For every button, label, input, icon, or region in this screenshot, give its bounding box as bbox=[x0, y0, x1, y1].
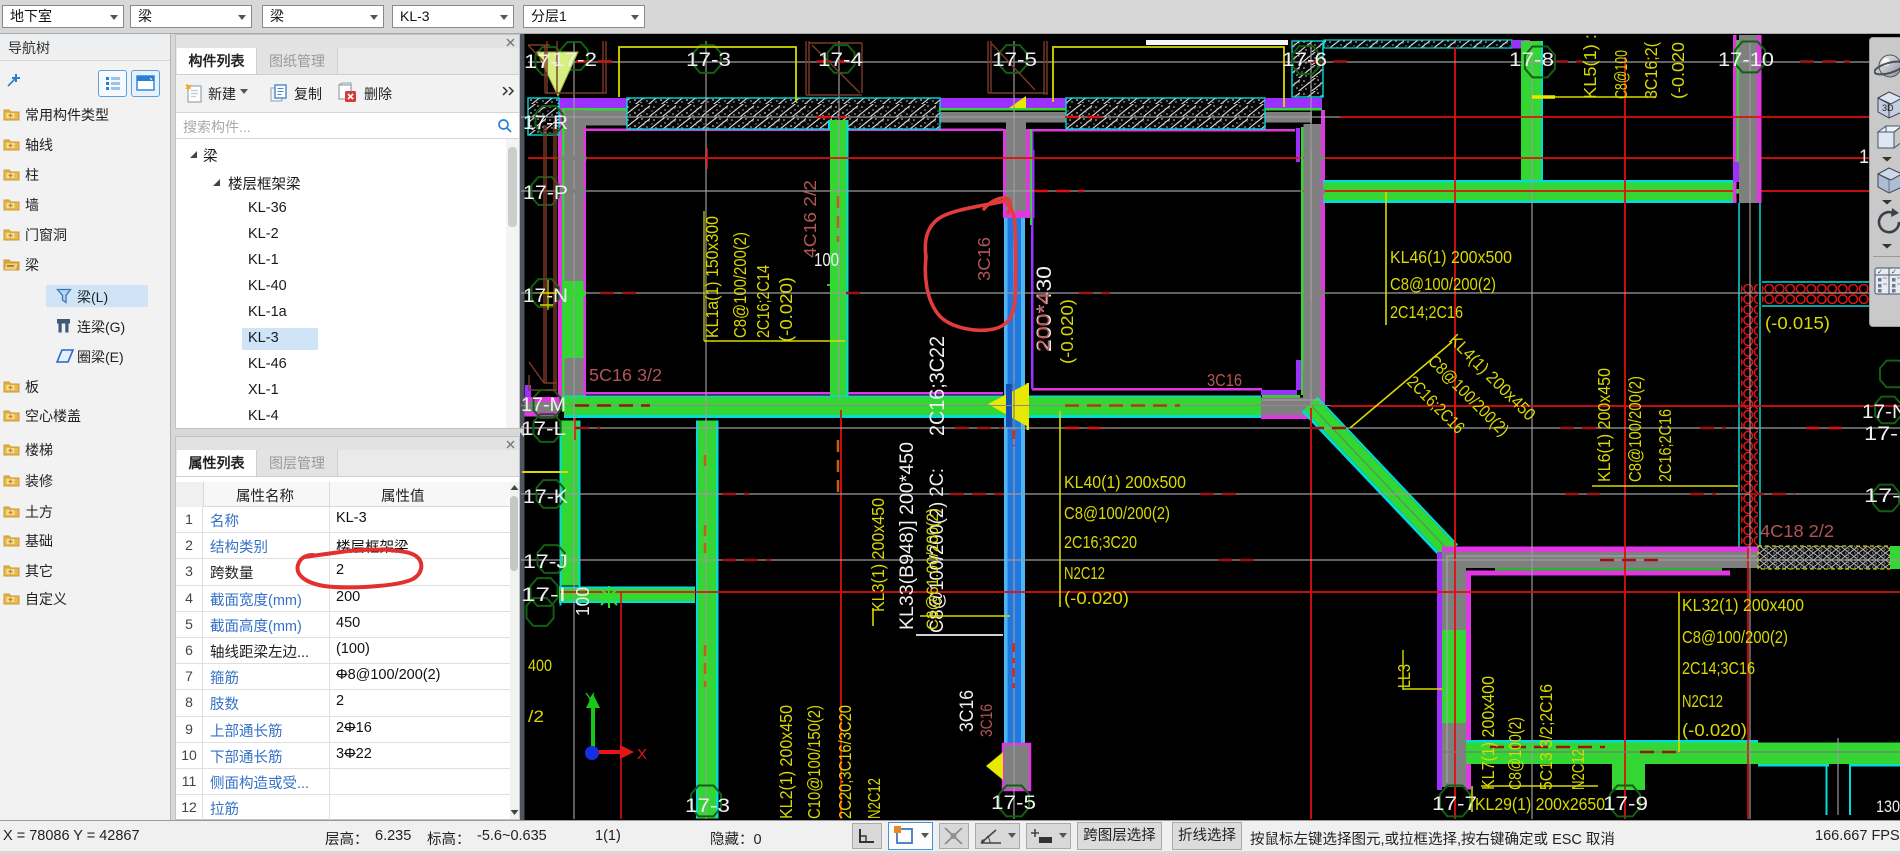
svg-text:2C16;3C20: 2C16;3C20 bbox=[1064, 532, 1137, 552]
svg-text:C10@100/150(2): C10@100/150(2) bbox=[804, 705, 824, 819]
svg-text:3C16: 3C16 bbox=[977, 704, 996, 737]
svg-text:17-10: 17-10 bbox=[1718, 50, 1774, 71]
svg-text:(-0.020): (-0.020) bbox=[776, 277, 796, 342]
svg-text:2C16;2C16: 2C16;2C16 bbox=[1655, 409, 1675, 482]
svg-text:✓: ✓ bbox=[1891, 269, 1897, 276]
svg-text:C8@100/200(2): C8@100/200(2) bbox=[1064, 503, 1170, 523]
svg-text:17-7: 17-7 bbox=[1432, 794, 1477, 815]
svg-text:130: 130 bbox=[1876, 797, 1900, 816]
svg-text:/2: /2 bbox=[528, 708, 544, 726]
svg-text:N2C12: N2C12 bbox=[1568, 749, 1588, 790]
svg-text:4C18 2/2: 4C18 2/2 bbox=[1760, 521, 1834, 541]
svg-text:17-3: 17-3 bbox=[685, 796, 730, 817]
svg-text:17-N: 17-N bbox=[1862, 402, 1900, 423]
svg-text:2C16;3C22: 2C16;3C22 bbox=[926, 336, 949, 436]
svg-text:C3@61.00/200(2): C3@61.00/200(2) bbox=[923, 508, 942, 630]
svg-text:17-N: 17-N bbox=[523, 286, 568, 307]
svg-text:(-0.020): (-0.020) bbox=[1064, 588, 1129, 608]
svg-text:KL6(1) 200x450: KL6(1) 200x450 bbox=[1594, 368, 1614, 482]
svg-text:17-J: 17-J bbox=[523, 552, 568, 573]
svg-text:17-6: 17-6 bbox=[1282, 50, 1327, 71]
svg-text:4C16 2/2: 4C16 2/2 bbox=[800, 180, 820, 258]
svg-text:400: 400 bbox=[528, 657, 552, 675]
svg-text:X: X bbox=[637, 746, 647, 763]
svg-text:N2C12: N2C12 bbox=[1064, 563, 1105, 583]
svg-text:KL7(1) 200x400: KL7(1) 200x400 bbox=[1478, 676, 1498, 790]
svg-text:17-: 17- bbox=[1864, 424, 1898, 445]
svg-text:KL1a(1) 150x300: KL1a(1) 150x300 bbox=[702, 216, 722, 338]
svg-text:17-K: 17-K bbox=[523, 487, 568, 508]
svg-text:17-I: 17-I bbox=[521, 585, 566, 606]
svg-text:(-0.020): (-0.020) bbox=[1057, 299, 1077, 364]
svg-text:C8@100/200(2): C8@100/200(2) bbox=[1625, 376, 1645, 482]
svg-text:17-M: 17-M bbox=[521, 395, 566, 416]
svg-text:3C16: 3C16 bbox=[974, 237, 994, 281]
svg-text:100: 100 bbox=[573, 587, 593, 616]
svg-text:17-5: 17-5 bbox=[992, 50, 1037, 71]
svg-text:1: 1 bbox=[1859, 147, 1869, 168]
svg-text:✓: ✓ bbox=[1877, 269, 1883, 276]
svg-text:KL46(1) 200x500: KL46(1) 200x500 bbox=[1390, 247, 1512, 267]
svg-text:C8@100/200(2): C8@100/200(2) bbox=[1682, 627, 1788, 647]
svg-text:C8@100(2): C8@100(2) bbox=[1505, 717, 1525, 790]
svg-text:KL40(1) 200x500: KL40(1) 200x500 bbox=[1064, 472, 1186, 492]
svg-text:2C16;2C14: 2C16;2C14 bbox=[753, 265, 773, 338]
svg-text:N2C12: N2C12 bbox=[1682, 691, 1723, 711]
svg-text:17-L: 17-L bbox=[521, 419, 566, 440]
svg-text:17-P: 17-P bbox=[523, 183, 568, 204]
svg-text:(-0.015): (-0.015) bbox=[1765, 313, 1830, 333]
svg-text:17-8: 17-8 bbox=[1509, 50, 1554, 71]
svg-text:KL29(1) 200x2650: KL29(1) 200x2650 bbox=[1475, 794, 1605, 814]
svg-text:3C16: 3C16 bbox=[957, 690, 978, 732]
svg-text:KL2(1) 200x450: KL2(1) 200x450 bbox=[776, 705, 796, 819]
svg-text:3C16;2(: 3C16;2( bbox=[1641, 42, 1661, 99]
svg-text:2C20;3C16/3C20: 2C20;3C16/3C20 bbox=[835, 705, 855, 819]
svg-text:C8@100: C8@100 bbox=[1611, 50, 1631, 99]
svg-text:(-0.020): (-0.020) bbox=[1682, 720, 1747, 740]
svg-text:KL32(1) 200x400: KL32(1) 200x400 bbox=[1682, 595, 1804, 615]
svg-text:17-R: 17-R bbox=[523, 113, 568, 134]
svg-text:Y: Y bbox=[585, 690, 595, 707]
svg-text:KL3(1) 200x450: KL3(1) 200x450 bbox=[868, 498, 888, 612]
svg-text:5C13 3/2;2C16: 5C13 3/2;2C16 bbox=[1536, 684, 1556, 790]
svg-text:2C14;2C16: 2C14;2C16 bbox=[1390, 302, 1463, 322]
svg-text:17-2: 17-2 bbox=[552, 50, 597, 71]
svg-text:200*4: 200*4 bbox=[1034, 292, 1053, 352]
svg-text:17-4: 17-4 bbox=[818, 50, 864, 71]
svg-text:C8@100/200(2): C8@100/200(2) bbox=[1390, 274, 1496, 294]
svg-text:17-3: 17-3 bbox=[686, 50, 731, 71]
svg-text:17-5: 17-5 bbox=[991, 793, 1036, 814]
svg-text:LL3: LL3 bbox=[1394, 664, 1414, 688]
svg-text:5C16 3/2: 5C16 3/2 bbox=[589, 365, 662, 385]
svg-text:(-0.020: (-0.020 bbox=[1668, 42, 1688, 99]
svg-text:100: 100 bbox=[814, 250, 839, 270]
svg-text:17-(: 17-( bbox=[1864, 486, 1900, 507]
svg-text:C8@100/200(2): C8@100/200(2) bbox=[730, 232, 750, 338]
svg-text:2C14;3C16: 2C14;3C16 bbox=[1682, 658, 1755, 678]
svg-text:3D: 3D bbox=[1882, 103, 1894, 113]
svg-text:17-9: 17-9 bbox=[1603, 794, 1648, 815]
svg-text:KL5(1) :: KL5(1) : bbox=[1580, 34, 1600, 99]
svg-text:KL33(B948)] 200*450: KL33(B948)] 200*450 bbox=[897, 442, 918, 630]
svg-text:N2C12: N2C12 bbox=[864, 778, 884, 819]
svg-text:3C16: 3C16 bbox=[1207, 370, 1242, 390]
